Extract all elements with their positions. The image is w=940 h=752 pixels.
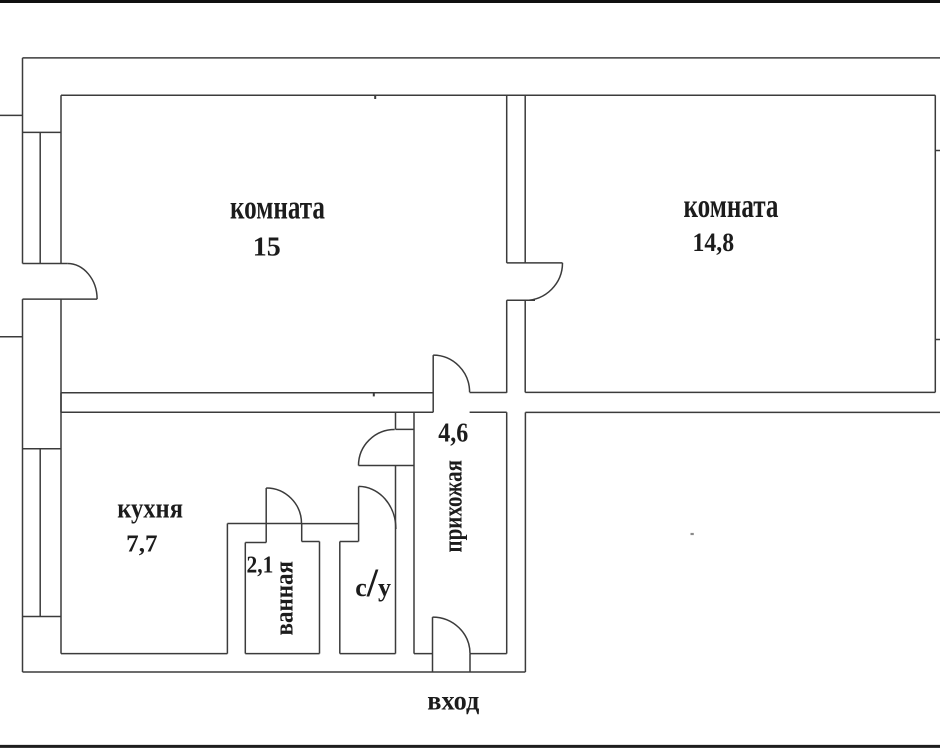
svg-text:7,7: 7,7 xyxy=(126,532,157,558)
svg-text:14,8: 14,8 xyxy=(693,228,735,257)
svg-text:прихожая: прихожая xyxy=(439,460,468,553)
svg-text:ванная: ванная xyxy=(270,561,299,636)
svg-text:4,6: 4,6 xyxy=(438,418,468,448)
svg-text:кухня: кухня xyxy=(117,494,183,525)
svg-text:комната: комната xyxy=(684,188,779,225)
svg-text:комната: комната xyxy=(230,190,325,227)
svg-text:вход: вход xyxy=(427,686,479,716)
svg-text:15: 15 xyxy=(253,232,281,262)
